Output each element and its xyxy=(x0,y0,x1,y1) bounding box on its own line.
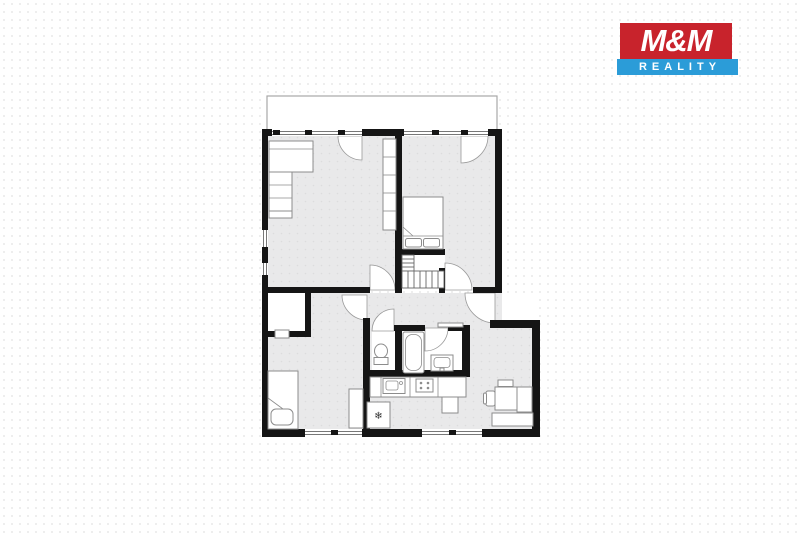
wall-closet xyxy=(289,331,311,337)
wall-right xyxy=(495,129,502,293)
wall-bath-right xyxy=(462,325,470,377)
wc-fixtures xyxy=(374,344,388,365)
chair-back xyxy=(484,393,487,404)
wall xyxy=(362,129,404,136)
pillow xyxy=(271,409,293,425)
wall-bottom xyxy=(262,429,305,437)
closet-door-leaf xyxy=(275,330,289,338)
window-line xyxy=(263,263,264,275)
burner xyxy=(420,382,423,385)
bedroom-furniture xyxy=(403,197,443,249)
window-tick xyxy=(432,130,439,135)
desk xyxy=(495,387,517,410)
window-tick xyxy=(273,130,280,135)
pillow xyxy=(406,239,422,248)
kitchen-unit xyxy=(442,397,458,413)
exterior-notch xyxy=(502,293,534,320)
wall-left xyxy=(262,247,268,263)
window-line xyxy=(266,263,267,275)
burner xyxy=(427,387,430,390)
toilet-bowl xyxy=(375,344,388,358)
wall-left xyxy=(262,129,268,230)
wall-hallway xyxy=(262,287,370,293)
sofa-seat xyxy=(269,172,292,211)
sofa-chaise xyxy=(269,141,313,172)
stove xyxy=(416,379,433,392)
low-cabinet xyxy=(492,413,533,426)
wall-bottom xyxy=(482,429,540,437)
window-tick xyxy=(461,130,468,135)
window-line xyxy=(272,131,362,132)
wall-closet xyxy=(262,331,275,337)
window-line xyxy=(263,230,264,247)
burner xyxy=(420,387,423,390)
sofa-armrest xyxy=(269,211,292,218)
window-tick xyxy=(331,430,338,435)
side-cabinet xyxy=(517,387,532,412)
window-line xyxy=(404,131,488,132)
window-tick xyxy=(305,130,312,135)
balcony xyxy=(267,96,497,130)
sink-tap xyxy=(440,368,444,371)
pillow xyxy=(424,239,440,248)
office-chair xyxy=(486,391,495,406)
window-tick xyxy=(338,130,345,135)
monitor xyxy=(498,380,513,387)
window-line xyxy=(404,134,488,135)
window-base xyxy=(262,263,268,275)
burner xyxy=(427,382,430,385)
page: M&M REALITY xyxy=(0,0,800,533)
wardrobe xyxy=(383,139,396,230)
wall-bath-top xyxy=(394,325,425,331)
window-line xyxy=(272,134,362,135)
closet-floor xyxy=(268,293,305,331)
window-line xyxy=(266,230,267,247)
wall-bottom xyxy=(362,429,422,437)
window-tick xyxy=(449,430,456,435)
wall-closet xyxy=(305,293,311,337)
bedroom-cabinet xyxy=(349,389,363,428)
wall-left xyxy=(262,275,268,437)
snowflake-icon: ❄ xyxy=(374,411,382,422)
wall-hallway xyxy=(473,287,502,293)
floorplan: ❄ xyxy=(0,0,800,533)
bathroom-shelf xyxy=(438,323,463,327)
toilet-tank xyxy=(374,358,388,365)
window-base xyxy=(262,230,268,247)
wall-below-bed xyxy=(400,249,445,255)
